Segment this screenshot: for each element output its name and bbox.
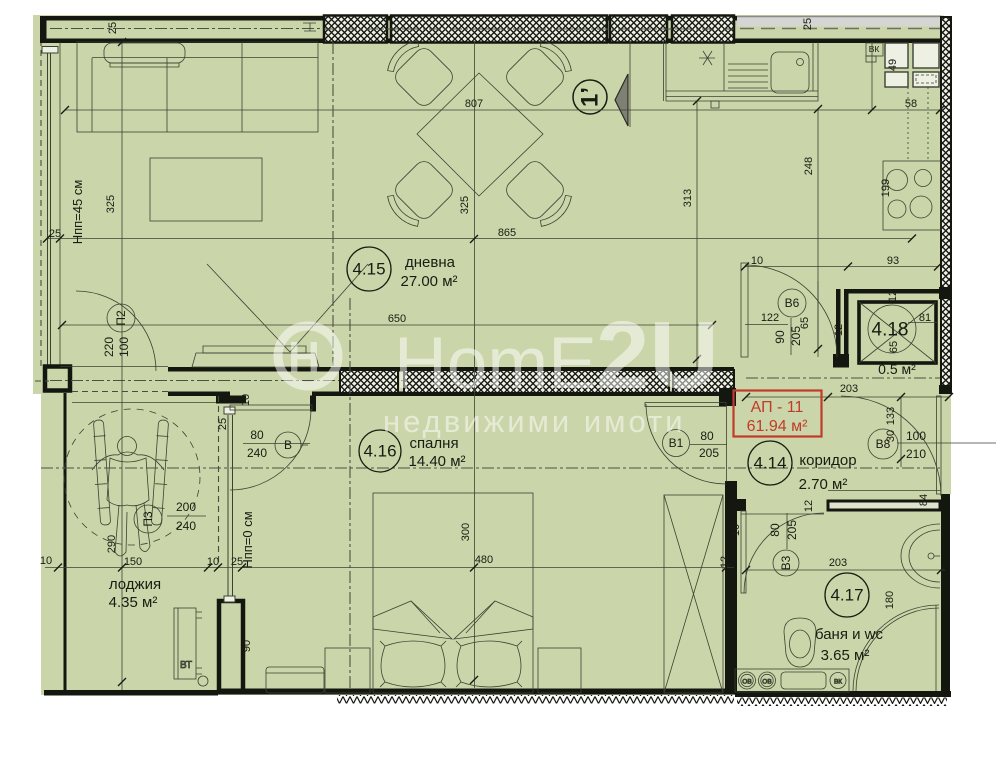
- svg-text:Н: Н: [288, 333, 320, 382]
- svg-text:90: 90: [773, 330, 787, 344]
- svg-text:313: 313: [682, 189, 694, 207]
- svg-text:ВК: ВК: [869, 44, 880, 54]
- svg-text:203: 203: [840, 383, 858, 395]
- svg-text:10: 10: [240, 394, 252, 406]
- svg-text:27.00 м²: 27.00 м²: [400, 273, 457, 290]
- svg-text:133: 133: [885, 407, 897, 425]
- svg-text:4.35 м²: 4.35 м²: [109, 594, 158, 611]
- svg-text:14.40 м²: 14.40 м²: [408, 453, 465, 470]
- svg-text:49: 49: [887, 59, 899, 71]
- svg-text:2.70 м²: 2.70 м²: [799, 476, 848, 493]
- svg-text:HomЕ: HomЕ: [394, 323, 597, 404]
- svg-text:10: 10: [40, 555, 52, 567]
- svg-text:лоджия: лоджия: [109, 576, 161, 593]
- svg-text:30: 30: [885, 430, 897, 442]
- svg-text:240: 240: [247, 446, 267, 460]
- svg-text:200: 200: [176, 500, 196, 514]
- svg-text:10: 10: [751, 255, 763, 267]
- svg-text:баня и wc: баня и wc: [815, 626, 884, 643]
- svg-text:58: 58: [905, 98, 917, 110]
- svg-text:205: 205: [699, 446, 719, 460]
- svg-text:ВТ: ВТ: [180, 660, 192, 671]
- svg-text:1’: 1’: [577, 87, 604, 107]
- svg-text:Нпп=45 см: Нпп=45 см: [70, 180, 85, 245]
- svg-text:180: 180: [884, 591, 896, 609]
- svg-text:П2: П2: [114, 310, 128, 326]
- svg-text:В: В: [284, 438, 292, 452]
- svg-text:210: 210: [906, 447, 926, 461]
- svg-text:150: 150: [124, 556, 142, 568]
- svg-text:12: 12: [719, 556, 731, 568]
- svg-text:325: 325: [105, 195, 117, 213]
- svg-text:10: 10: [730, 524, 742, 536]
- svg-text:коридор: коридор: [799, 452, 856, 469]
- svg-text:П3: П3: [141, 511, 155, 527]
- svg-text:325: 325: [459, 196, 471, 214]
- svg-text:205: 205: [785, 520, 799, 540]
- svg-text:дневна: дневна: [405, 254, 456, 271]
- svg-text:3.65 м²: 3.65 м²: [821, 647, 870, 664]
- svg-text:недвижими имоти: недвижими имоти: [383, 404, 686, 439]
- svg-text:61.94 м²: 61.94 м²: [747, 418, 808, 435]
- svg-text:4.14: 4.14: [753, 454, 786, 473]
- svg-text:300: 300: [460, 523, 472, 541]
- svg-text:4.16: 4.16: [363, 442, 396, 461]
- svg-text:84: 84: [918, 494, 930, 506]
- svg-text:4.17: 4.17: [830, 586, 863, 605]
- svg-text:АП - 11: АП - 11: [751, 399, 804, 416]
- svg-text:0.5 м²: 0.5 м²: [878, 361, 916, 377]
- svg-text:65: 65: [888, 341, 900, 353]
- svg-text:240: 240: [176, 519, 196, 533]
- svg-text:93: 93: [887, 255, 899, 267]
- svg-text:25: 25: [217, 418, 229, 430]
- svg-text:ОВ: ОВ: [742, 679, 751, 686]
- svg-text:122: 122: [761, 312, 779, 324]
- svg-text:12: 12: [833, 324, 845, 336]
- svg-text:80: 80: [250, 428, 264, 442]
- svg-text:25: 25: [802, 18, 814, 30]
- svg-text:4.18: 4.18: [872, 320, 909, 341]
- svg-text:ОВ: ОВ: [762, 679, 771, 686]
- svg-text:В3: В3: [779, 555, 793, 570]
- svg-text:65: 65: [799, 317, 811, 329]
- svg-text:12: 12: [803, 500, 815, 512]
- svg-text:100: 100: [906, 429, 926, 443]
- svg-text:80: 80: [768, 523, 782, 537]
- svg-text:Нпп=0 см: Нпп=0 см: [240, 511, 255, 568]
- svg-text:220: 220: [102, 337, 116, 357]
- svg-text:199: 199: [880, 179, 892, 197]
- svg-text:2U: 2U: [596, 302, 719, 409]
- svg-text:865: 865: [498, 227, 516, 239]
- svg-text:25: 25: [107, 22, 119, 34]
- svg-text:290: 290: [106, 535, 118, 553]
- svg-text:ВК: ВК: [834, 679, 842, 686]
- svg-text:12: 12: [887, 290, 899, 302]
- svg-text:81: 81: [919, 312, 931, 324]
- svg-text:В6: В6: [785, 296, 800, 310]
- svg-text:807: 807: [465, 98, 483, 110]
- svg-text:80: 80: [700, 429, 714, 443]
- svg-text:203: 203: [829, 557, 847, 569]
- svg-text:100: 100: [117, 337, 131, 357]
- svg-text:25: 25: [49, 228, 61, 240]
- svg-text:90: 90: [241, 640, 253, 652]
- svg-text:4.15: 4.15: [352, 260, 385, 279]
- svg-text:248: 248: [803, 157, 815, 175]
